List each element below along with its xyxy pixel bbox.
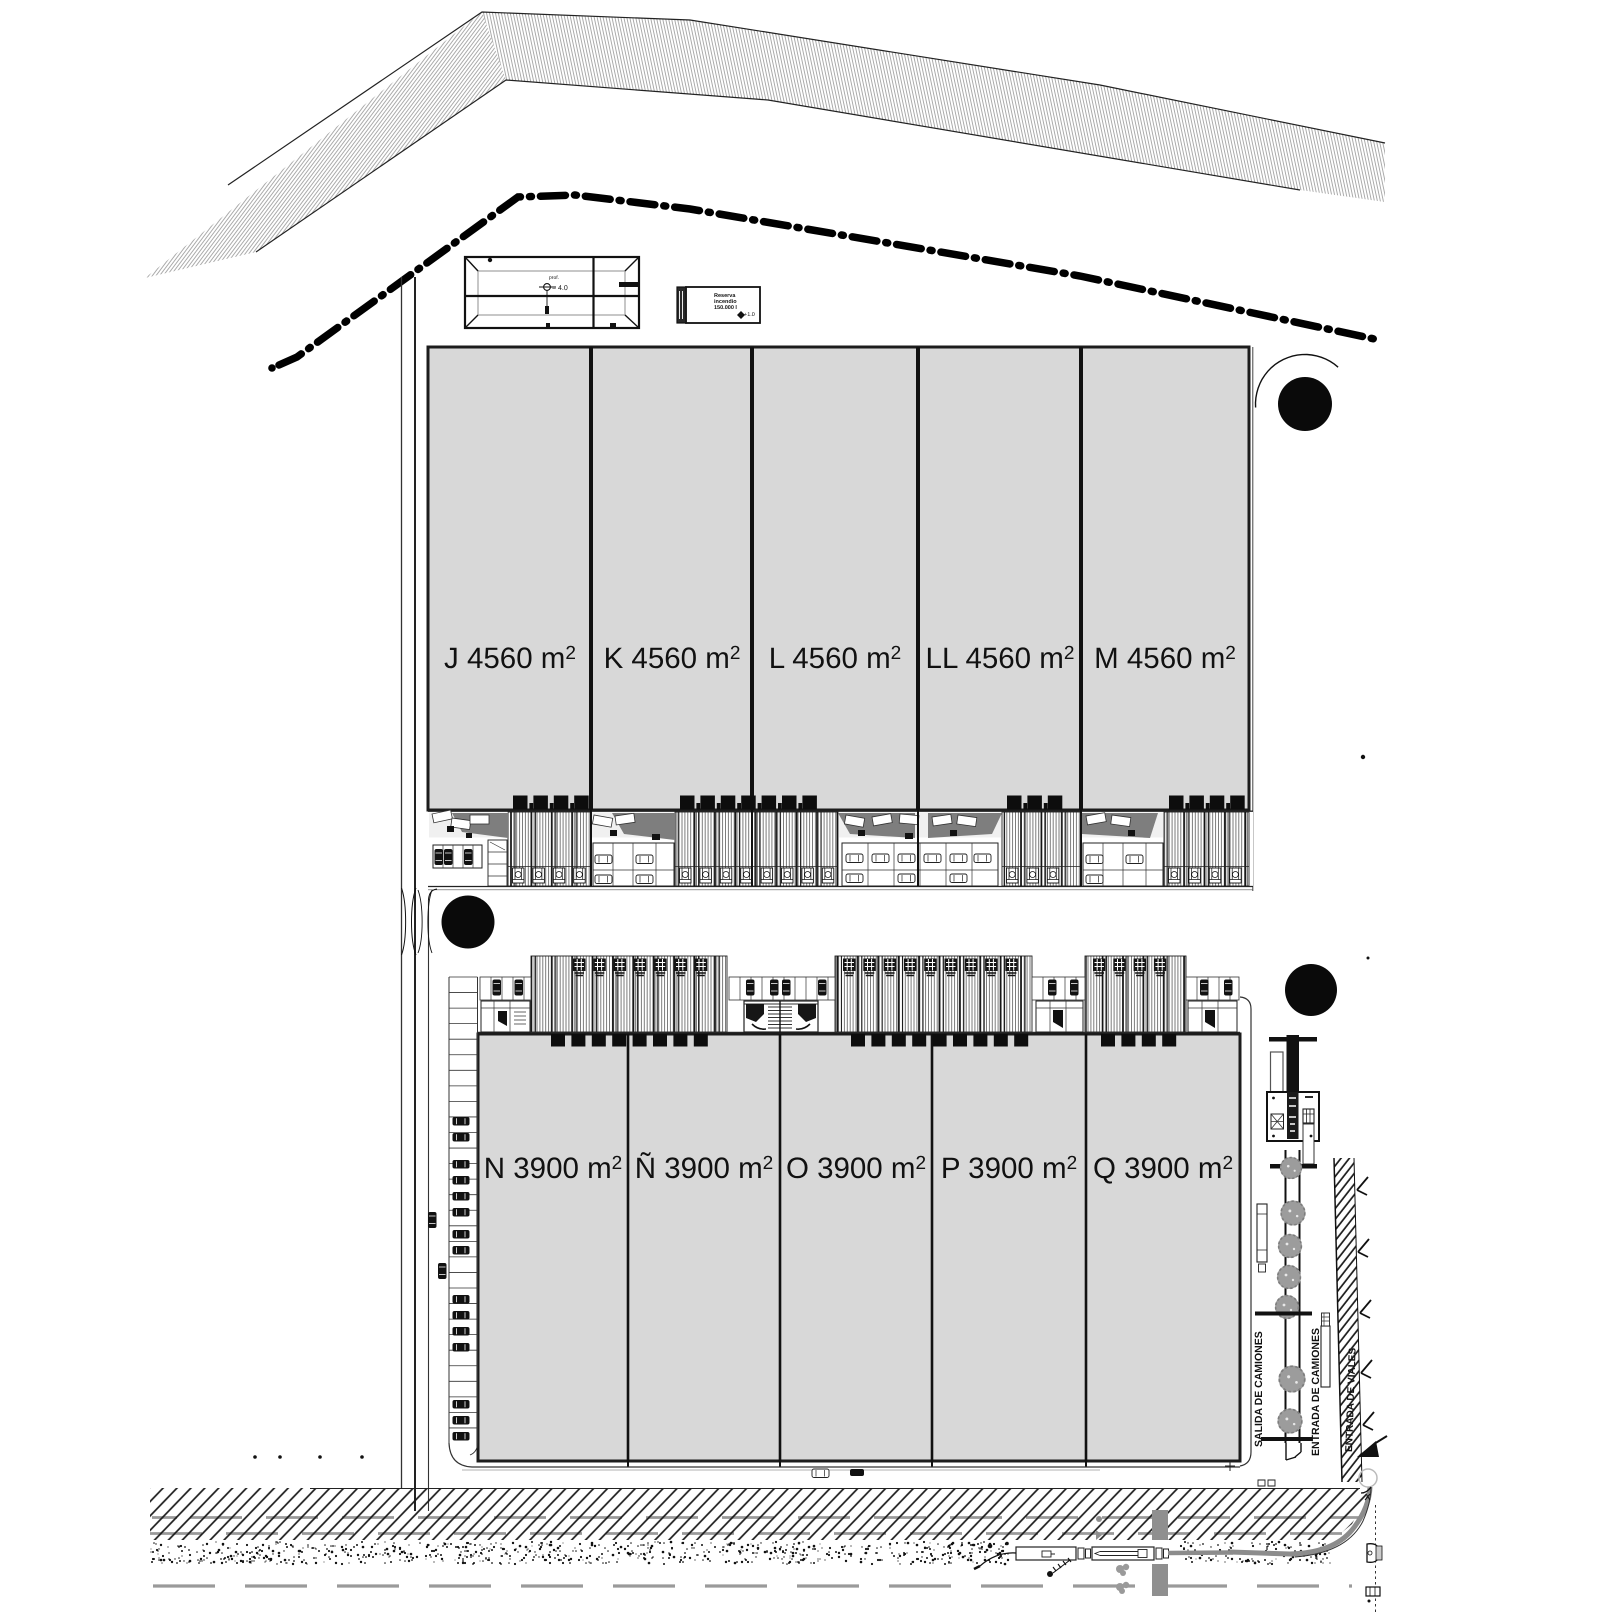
- svg-text:O 3900 m2: O 3900 m2: [786, 1152, 926, 1185]
- svg-text:J 4560 m2: J 4560 m2: [444, 642, 576, 675]
- svg-text:SALIDA DE CAMIONES: SALIDA DE CAMIONES: [1253, 1331, 1265, 1447]
- svg-text:K 4560 m2: K 4560 m2: [604, 642, 741, 675]
- svg-text:L 4560 m2: L 4560 m2: [769, 642, 901, 675]
- svg-text:M 4560 m2: M 4560 m2: [1094, 642, 1236, 675]
- svg-text:P 3900 m2: P 3900 m2: [941, 1152, 1077, 1185]
- svg-text:ENTRADA DE CAMIONES: ENTRADA DE CAMIONES: [1310, 1328, 1322, 1456]
- svg-text:LL 4560 m2: LL 4560 m2: [926, 642, 1075, 675]
- svg-text:prof.: prof.: [549, 275, 559, 281]
- svg-text:Q 3900 m2: Q 3900 m2: [1093, 1152, 1233, 1185]
- svg-text:N 3900 m2: N 3900 m2: [484, 1152, 622, 1185]
- svg-text:150.000 l: 150.000 l: [714, 305, 737, 311]
- svg-text:Ñ 3900 m2: Ñ 3900 m2: [635, 1152, 773, 1185]
- svg-text:+1.0: +1.0: [744, 312, 755, 318]
- svg-text:= 4.0: = 4.0: [552, 285, 568, 292]
